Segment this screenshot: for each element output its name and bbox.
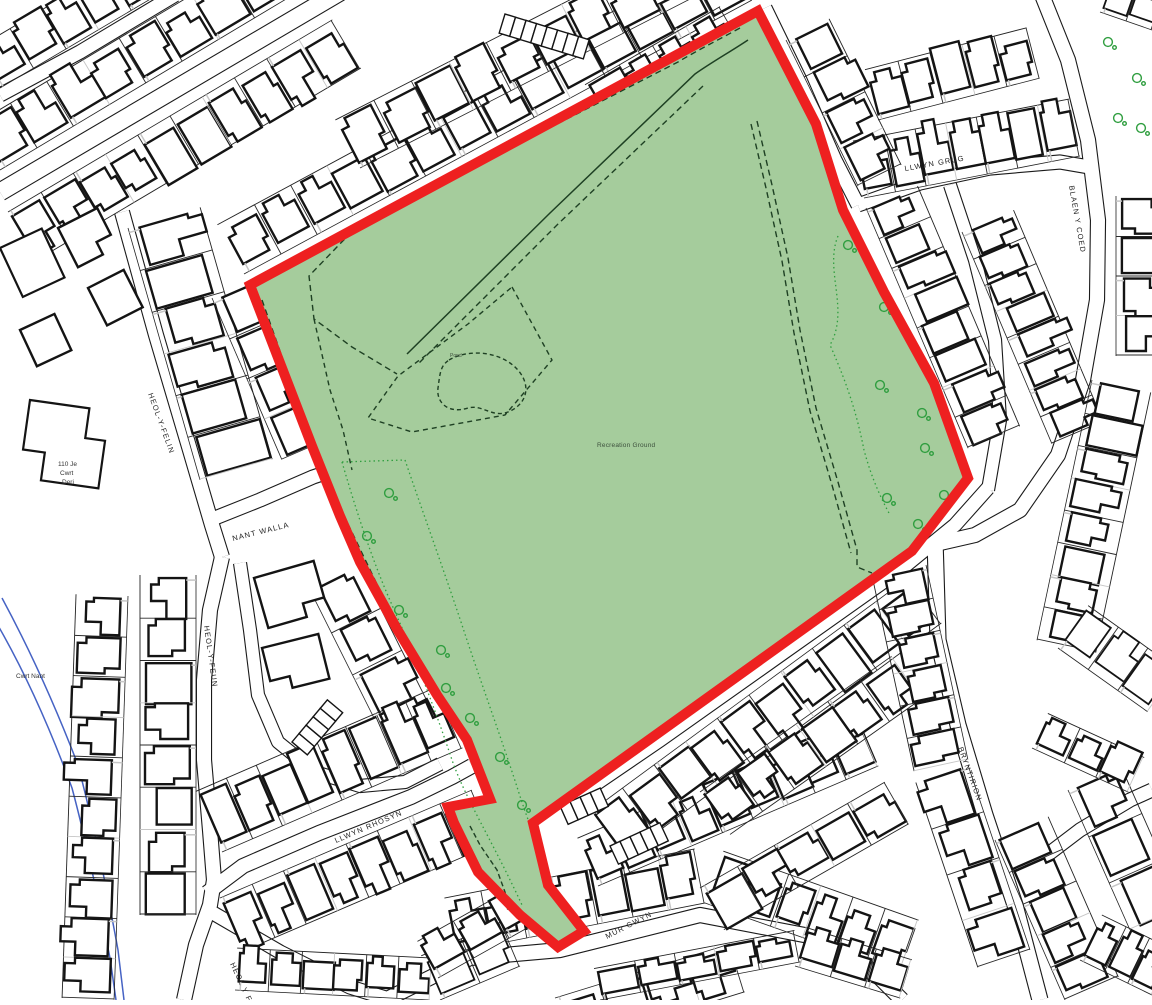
svg-text:Recreation Ground: Recreation Ground	[597, 442, 656, 449]
svg-text:Cwrt Nant: Cwrt Nant	[16, 673, 45, 680]
svg-text:Pond: Pond	[450, 353, 462, 359]
svg-text:Cwrt: Cwrt	[60, 470, 74, 477]
svg-text:110 Je: 110 Je	[58, 461, 77, 468]
svg-text:Deri: Deri	[62, 479, 74, 486]
